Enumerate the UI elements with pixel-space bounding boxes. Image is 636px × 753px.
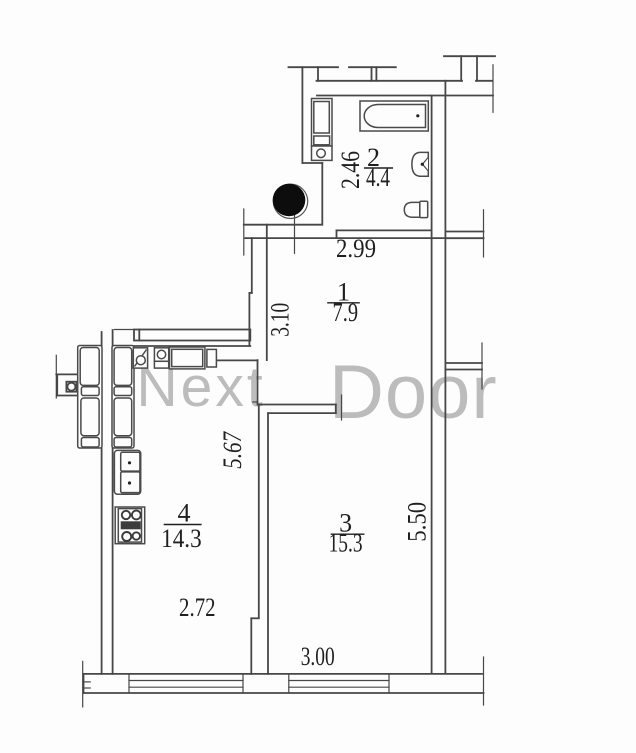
svg-text:4.4: 4.4 — [366, 163, 390, 192]
svg-text:7.9: 7.9 — [333, 298, 359, 327]
svg-text:5.67: 5.67 — [218, 431, 247, 469]
svg-text:14.3: 14.3 — [161, 524, 202, 553]
svg-text:3.00: 3.00 — [301, 642, 335, 671]
svg-text:2.72: 2.72 — [179, 593, 216, 622]
svg-text:2.99: 2.99 — [336, 234, 376, 263]
svg-text:5.50: 5.50 — [403, 502, 432, 542]
svg-text:2.46: 2.46 — [336, 151, 365, 189]
svg-text:3.10: 3.10 — [266, 303, 295, 337]
svg-text:15.3: 15.3 — [329, 528, 363, 557]
